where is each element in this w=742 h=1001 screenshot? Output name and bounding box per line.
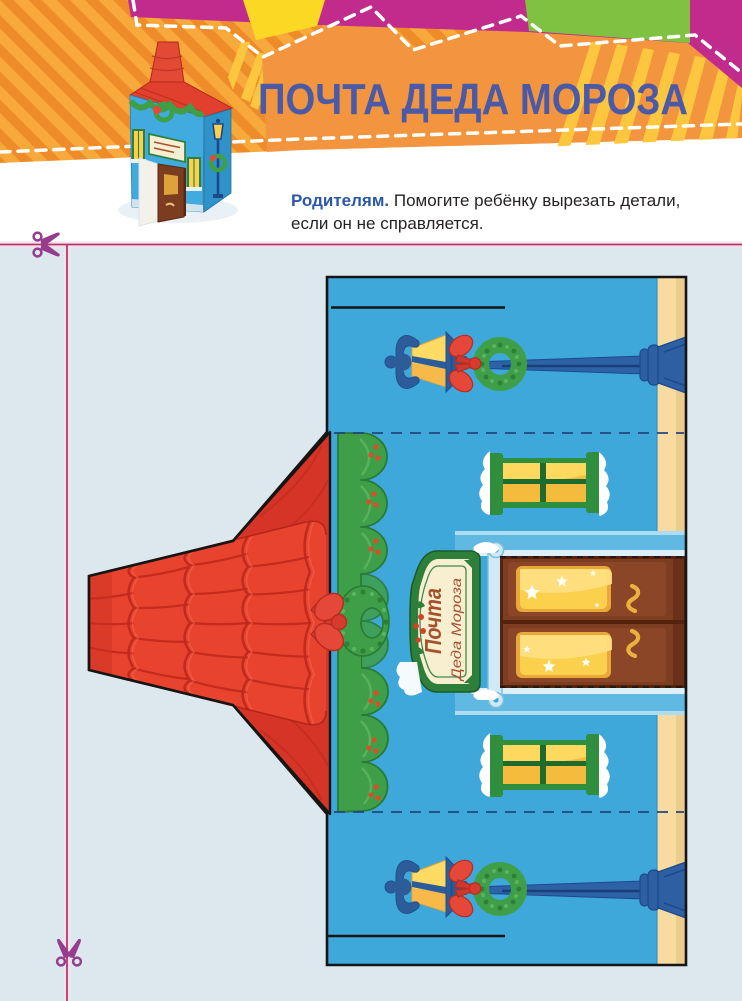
svg-text:ПОЧТА ДЕДА МОРОЗА: ПОЧТА ДЕДА МОРОЗА: [258, 75, 688, 124]
svg-text:Родителям. Помогите ребёнку вы: Родителям. Помогите ребёнку вырезать дет…: [291, 191, 680, 210]
svg-text:Деда Мороза: Деда Мороза: [449, 577, 464, 682]
svg-text:Почта: Почта: [420, 588, 446, 654]
svg-text:если он не справляется.: если он не справляется.: [291, 214, 484, 233]
